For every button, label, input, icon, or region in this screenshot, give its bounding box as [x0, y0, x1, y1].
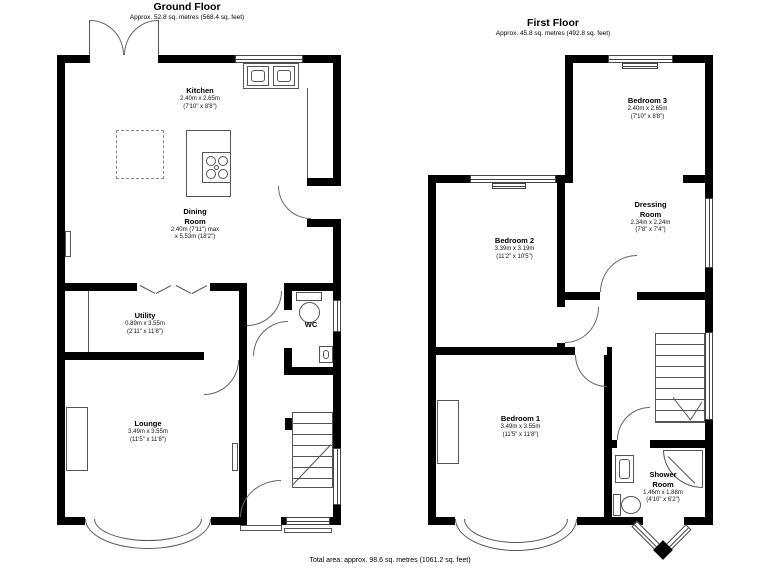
bifold-door	[192, 285, 207, 294]
room-name: Bedroom 3	[605, 96, 690, 106]
door-arc	[124, 20, 158, 55]
wall	[158, 55, 235, 63]
wall	[333, 63, 341, 178]
wall	[303, 55, 341, 63]
room-label-bedroom-1: Bedroom 1 3.49m x 3.55m (11'5" x 11'8")	[478, 414, 563, 439]
wall	[612, 440, 617, 448]
wall	[285, 418, 292, 430]
window	[705, 332, 713, 420]
table-dashed-outline	[116, 130, 164, 179]
door-arc	[204, 360, 239, 395]
door-arc	[278, 186, 311, 219]
window	[492, 183, 526, 189]
room-label-utility: Utility 0.89m x 3.55m (2'11" x 11'8")	[105, 311, 185, 336]
window-sill	[284, 528, 332, 533]
first-floor-title-block: First Floor Approx. 45.8 sq. metres (492…	[473, 17, 633, 37]
wall	[428, 517, 455, 525]
room-dims-imperial: (4'10" x 6'2")	[625, 497, 701, 505]
door-arc	[600, 255, 637, 292]
room-label-wc: WC	[295, 320, 327, 330]
wall	[239, 291, 247, 360]
window	[622, 63, 658, 69]
toilet-icon	[613, 494, 621, 516]
room-name: Dressing Room	[608, 200, 693, 220]
room-dims-imperial: (11'5" x 11'8")	[108, 437, 188, 445]
wall	[565, 292, 600, 300]
wall	[557, 183, 565, 307]
kitchen-divider-line	[307, 88, 308, 178]
radiator	[65, 231, 71, 257]
room-dims-metric: 3.39m x 3.19m	[472, 246, 557, 254]
wall	[607, 347, 612, 355]
wall	[57, 283, 137, 291]
room-name: WC	[295, 320, 327, 330]
room-dims-imperial: (7'10" x 8'8")	[605, 114, 690, 122]
window	[286, 517, 330, 525]
door-arc	[247, 291, 282, 326]
room-label-shower-room: Shower Room 1.46m x 1.88m (4'10" x 6'2")	[625, 470, 701, 505]
wall	[683, 175, 713, 183]
window	[470, 175, 556, 183]
wall	[57, 55, 90, 63]
hob-icon	[202, 152, 231, 183]
wall	[284, 291, 292, 310]
door-arc	[565, 307, 599, 343]
room-dims-metric: 2.40m x 2.65m	[605, 106, 690, 114]
wall	[210, 283, 247, 291]
room-label-dining-room: Dining Room 2.40m (7'11") max x 5.53m (1…	[150, 207, 240, 242]
door-leaf	[89, 20, 90, 55]
room-name: Utility	[105, 311, 185, 321]
room-dims-metric: 1.46m x 1.88m	[625, 490, 701, 498]
wall	[705, 420, 713, 523]
wall	[637, 292, 713, 300]
utility-counter-line	[88, 291, 89, 352]
room-name: Bedroom 2	[472, 236, 557, 246]
ground-floor-title-block: Ground Floor Approx. 52.8 sq. metres (56…	[107, 1, 267, 21]
wall	[307, 219, 341, 227]
room-name: Shower Room	[625, 470, 701, 490]
wall	[577, 517, 612, 525]
first-floor-title: First Floor	[473, 17, 633, 29]
room-name: Bedroom 1	[478, 414, 563, 424]
door-arc	[253, 321, 288, 356]
room-label-bedroom-3: Bedroom 3 2.40m x 2.65m (7'10" x 8'8")	[605, 96, 690, 121]
wall	[57, 352, 204, 360]
room-dims-metric: 2.34m x 2.24m	[608, 220, 693, 228]
room-dims-imperial: x 5.53m (18'2")	[150, 234, 240, 242]
door-arc	[90, 20, 124, 55]
kitchen-sink-icon	[273, 66, 295, 86]
door-arc	[617, 407, 650, 440]
kitchen-sink-icon	[247, 66, 269, 86]
bifold-door	[156, 285, 171, 294]
floorplan-canvas: Ground Floor Approx. 52.8 sq. metres (56…	[0, 0, 768, 576]
room-dims-imperial: (11'2" x 10'5")	[472, 254, 557, 262]
door-arc	[575, 355, 607, 387]
door-step	[240, 525, 282, 531]
wall	[307, 178, 341, 186]
toilet-icon	[296, 292, 322, 301]
wall	[211, 517, 240, 525]
wall	[650, 440, 713, 448]
ground-floor-area: Approx. 52.8 sq. metres (568.4 sq. feet)	[107, 14, 267, 21]
door-leaf	[158, 20, 159, 55]
wall	[705, 268, 713, 332]
room-dims-metric: 3.49m x 3.55m	[478, 424, 563, 432]
ground-floor-title: Ground Floor	[107, 1, 267, 13]
wall	[556, 175, 573, 183]
window	[333, 448, 341, 505]
wall	[673, 55, 713, 63]
wall	[330, 517, 341, 525]
window	[333, 300, 341, 332]
wall	[284, 367, 341, 375]
wall	[684, 517, 713, 525]
wall	[284, 283, 341, 291]
room-dims-imperial: (11'5" x 11'8")	[478, 432, 563, 440]
wall	[333, 332, 341, 448]
room-label-lounge: Lounge 3.49m x 3.55m (11'5" x 11'8")	[108, 419, 188, 444]
room-dims-metric: 2.40m (7'11") max	[150, 227, 240, 235]
window	[608, 55, 673, 63]
wardrobe	[437, 400, 459, 464]
room-name: Dining Room	[150, 207, 240, 227]
room-label-bedroom-2: Bedroom 2 3.39m x 3.19m (11'2" x 10'5")	[472, 236, 557, 261]
room-dims-imperial: (7'10" x 8'8")	[160, 104, 240, 112]
room-dims-metric: 0.89m x 3.55m	[105, 321, 185, 329]
cabinet	[66, 407, 88, 471]
room-dims-metric: 2.40m x 2.65m	[160, 96, 240, 104]
total-area-note: Total area: approx. 98.6 sq. metres (106…	[250, 557, 530, 564]
radiator	[232, 443, 238, 471]
room-label-dressing-room: Dressing Room 2.34m x 2.24m (7'8" x 7'4"…	[608, 200, 693, 235]
room-dims-imperial: (7'8" x 7'4")	[608, 227, 693, 235]
bifold-door	[140, 285, 155, 294]
wall	[428, 347, 575, 355]
window	[705, 198, 713, 268]
first-floor-area: Approx. 45.8 sq. metres (492.8 sq. feet)	[473, 30, 633, 37]
room-name: Lounge	[108, 419, 188, 429]
room-name: Kitchen	[160, 86, 240, 96]
room-dims-metric: 3.49m x 3.55m	[108, 429, 188, 437]
room-dims-imperial: (2'11" x 11'8")	[105, 329, 185, 337]
wall	[57, 517, 85, 525]
room-label-kitchen: Kitchen 2.40m x 2.65m (7'10" x 8'8")	[160, 86, 240, 111]
basin-icon	[319, 346, 333, 363]
window	[235, 55, 303, 63]
bifold-door	[176, 285, 191, 294]
wall	[565, 55, 573, 183]
